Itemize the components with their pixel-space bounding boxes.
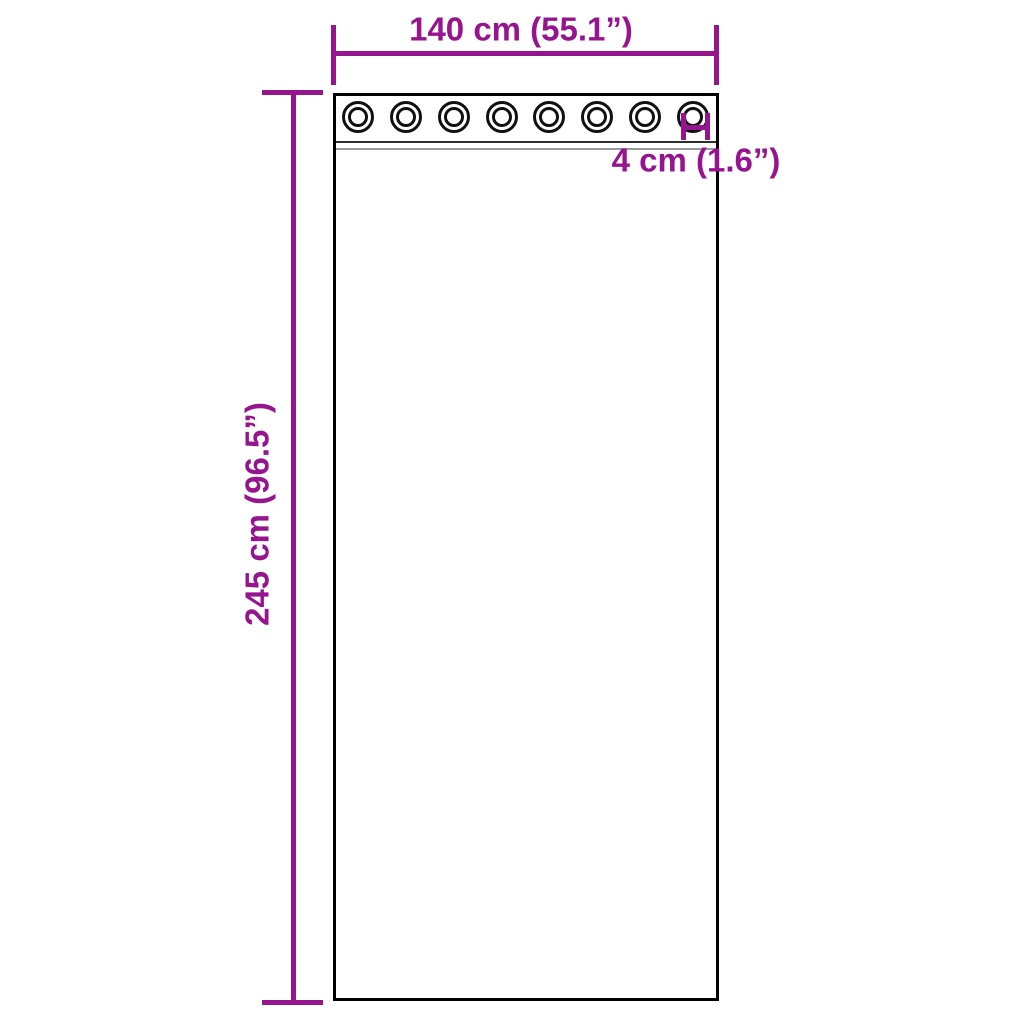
curtain-panel [333,93,719,1001]
height-dimension-cap-top [262,90,323,95]
height-dimension-label: 245 cm (96.5”) [241,402,274,626]
grommet-icon [438,101,470,133]
width-dimension-tick-right [714,25,719,85]
width-dimension-tick-left [331,25,336,85]
width-dimension-label: 140 cm (55.1”) [409,13,633,46]
grommet-hole [635,107,655,127]
height-dimension-line [291,90,296,1005]
grommet-hole [492,107,512,127]
grommet-row [342,101,709,133]
spacing-dimension-line [681,125,710,130]
grommet-icon [629,101,661,133]
grommet-icon [342,101,374,133]
grommet-hole [539,107,559,127]
dimension-diagram: 140 cm (55.1”) 245 cm (96.5”) 4 cm (1.6”… [0,0,1024,1024]
width-dimension-line [333,51,718,56]
grommet-hole [444,107,464,127]
grommet-icon [486,101,518,133]
grommet-hole [348,107,368,127]
spacing-dimension-label: 4 cm (1.6”) [612,144,781,177]
height-dimension-cap-bottom [262,1000,323,1005]
grommet-icon [390,101,422,133]
grommet-icon [581,101,613,133]
grommet-hole [587,107,607,127]
grommet-icon [533,101,565,133]
grommet-hole [396,107,416,127]
